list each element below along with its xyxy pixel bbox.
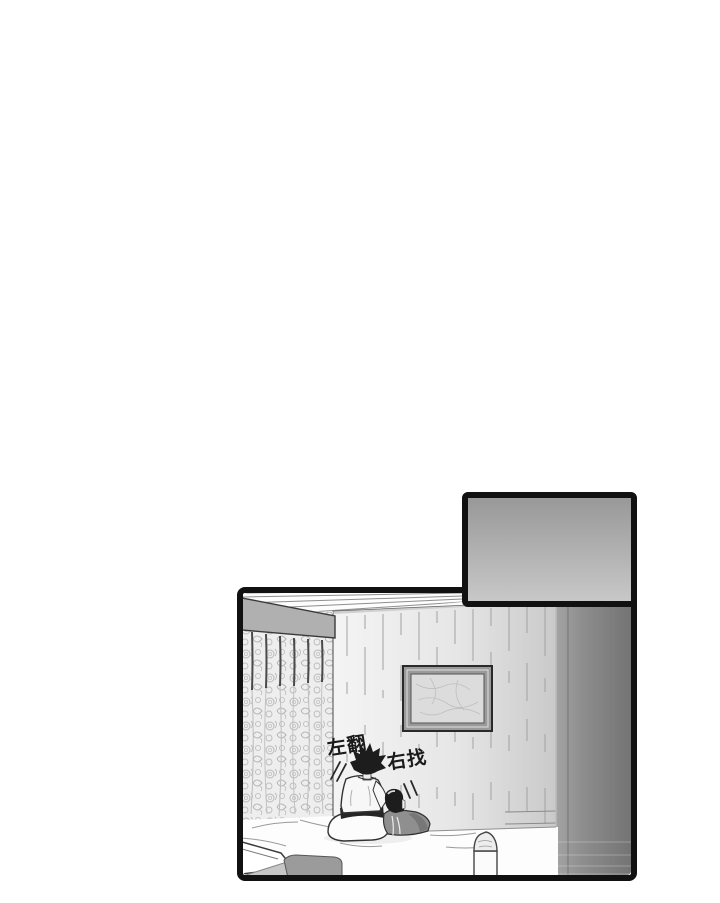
manga-artwork: 左翻 右找 [0,0,720,903]
side-wall [556,600,634,878]
inset-panel [465,495,634,604]
bottle [474,832,497,877]
manga-page: 左翻 右找 [0,0,720,903]
child-face [402,799,405,809]
main-panel: 左翻 右找 [242,592,634,878]
curtain [242,598,335,824]
picture-frame [403,666,492,731]
inset-panel-border [465,495,634,604]
